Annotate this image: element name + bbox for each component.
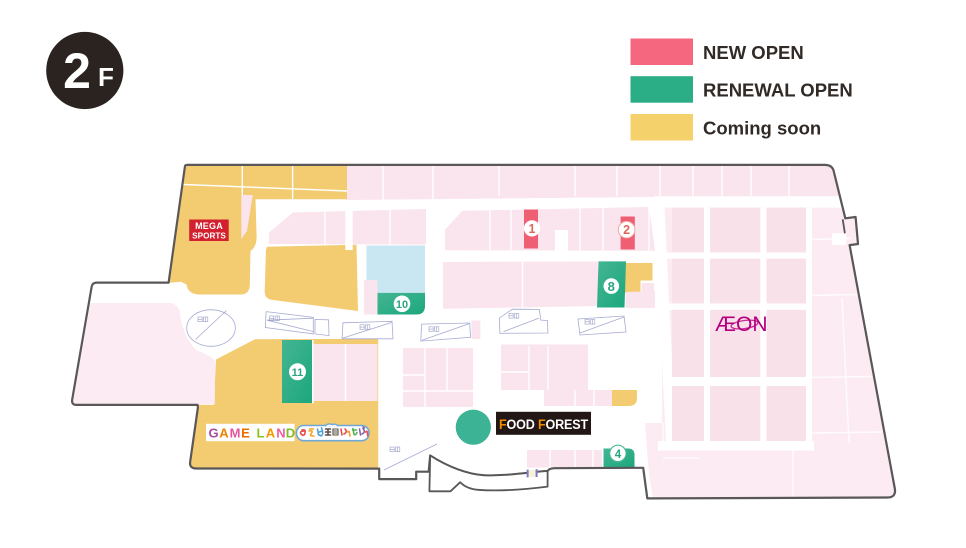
svg-text:4: 4 xyxy=(615,449,622,461)
svg-text:N: N xyxy=(276,426,285,441)
svg-text:SPORTS: SPORTS xyxy=(192,232,226,241)
svg-text:10: 10 xyxy=(396,299,408,311)
svg-text:D: D xyxy=(286,426,295,441)
svg-text:2: 2 xyxy=(63,43,91,99)
svg-text:L: L xyxy=(257,426,265,441)
svg-text:A: A xyxy=(219,426,229,441)
svg-text:E: E xyxy=(241,426,250,441)
svg-text:F: F xyxy=(98,62,114,92)
svg-text:A: A xyxy=(266,426,276,441)
svg-text:2: 2 xyxy=(623,223,630,237)
svg-text:M: M xyxy=(230,426,241,441)
svg-text:RENEWAL OPEN: RENEWAL OPEN xyxy=(703,80,853,101)
svg-text:MEGA: MEGA xyxy=(195,221,223,231)
svg-text:FOOD FOREST: FOOD FOREST xyxy=(499,416,588,432)
svg-text:ÆON: ÆON xyxy=(715,313,768,336)
svg-text:8: 8 xyxy=(608,279,615,294)
svg-text:1: 1 xyxy=(529,222,536,236)
svg-text:G: G xyxy=(208,426,218,441)
svg-text:NEW OPEN: NEW OPEN xyxy=(703,42,804,63)
svg-text:Coming soon: Coming soon xyxy=(703,118,821,139)
svg-text:11: 11 xyxy=(292,367,304,379)
